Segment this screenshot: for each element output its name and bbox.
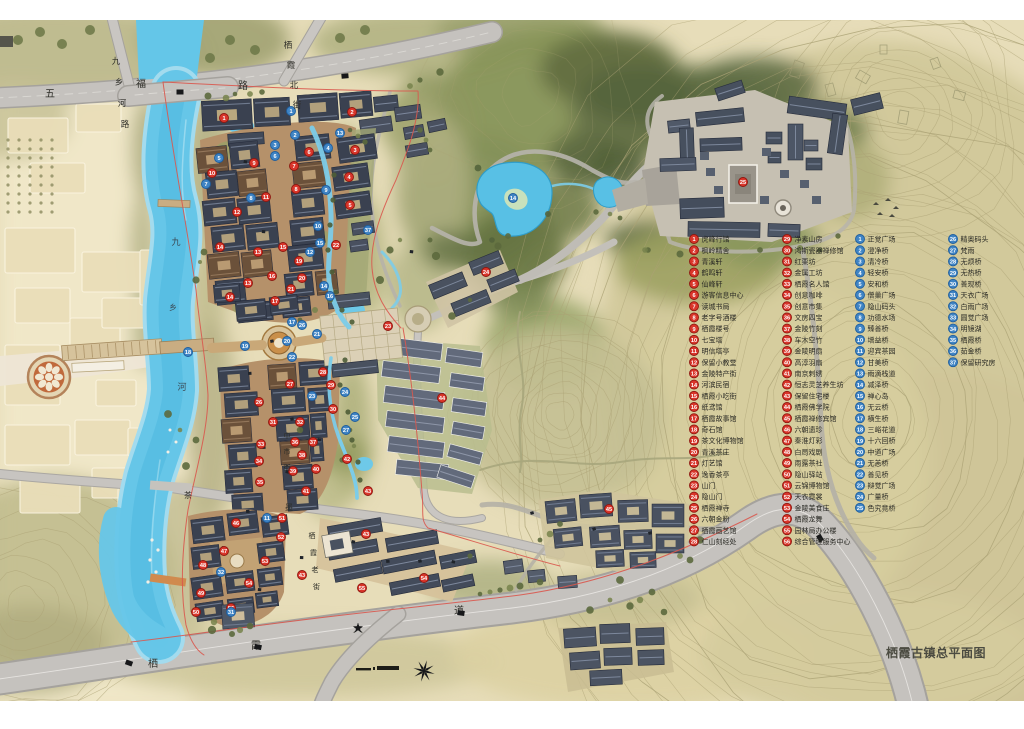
svg-text:8: 8 [249,196,252,202]
svg-text:27: 27 [287,382,293,388]
svg-text:河: 河 [118,98,127,108]
svg-text:读城书局: 读城书局 [702,302,730,311]
svg-text:29: 29 [784,237,790,243]
svg-text:43: 43 [365,489,371,495]
svg-text:隐山门: 隐山门 [702,492,723,501]
svg-text:栖霞故事馆: 栖霞故事馆 [702,414,737,423]
svg-text:18: 18 [857,428,863,434]
svg-text:老: 老 [312,565,319,574]
svg-text:街: 街 [293,100,302,110]
svg-text:2: 2 [293,133,296,139]
svg-text:栖: 栖 [148,657,158,670]
svg-text:24: 24 [857,495,864,501]
svg-text:26: 26 [691,517,697,523]
svg-text:安和桥: 安和桥 [868,279,889,288]
svg-text:16: 16 [327,294,333,300]
svg-text:21: 21 [288,287,294,293]
svg-text:28: 28 [320,370,326,376]
svg-text:秦淮灯彩: 秦淮灯彩 [795,436,823,445]
svg-text:6: 6 [692,293,695,299]
svg-text:21: 21 [857,461,863,467]
svg-text:50: 50 [193,610,199,616]
svg-text:甘美桥: 甘美桥 [868,358,889,367]
svg-text:创意咖啡: 创意咖啡 [795,291,823,300]
svg-text:8: 8 [858,316,861,322]
svg-text:精奥码头: 精奥码头 [961,235,989,244]
svg-text:金属工坊: 金属工坊 [795,268,823,277]
svg-text:霞: 霞 [310,549,317,557]
svg-text:1: 1 [289,109,292,115]
svg-text:中: 中 [284,431,291,440]
svg-text:7: 7 [292,164,295,170]
svg-text:文房四宝: 文房四宝 [795,313,823,322]
svg-text:隐山驿站: 隐山驿站 [795,470,823,479]
svg-text:19: 19 [857,439,863,445]
svg-text:鸿斯瓷器禅修馆: 鸿斯瓷器禅修馆 [795,246,844,255]
svg-text:色究竟桥: 色究竟桥 [868,503,896,512]
svg-text:55: 55 [359,586,365,592]
svg-text:仙峰轩: 仙峰轩 [702,279,723,288]
svg-text:27: 27 [343,428,349,434]
svg-text:栖霞古镇总平面图: 栖霞古镇总平面图 [886,645,986,660]
svg-text:栖霞佛学院: 栖霞佛学院 [795,403,830,412]
svg-text:7: 7 [692,304,695,310]
svg-text:九: 九 [171,237,180,247]
svg-text:22: 22 [857,472,863,478]
svg-text:9: 9 [324,188,327,194]
svg-text:15: 15 [317,241,323,247]
svg-text:恒志灵芝养生坊: 恒志灵芝养生坊 [795,380,844,389]
svg-text:31: 31 [950,293,956,299]
svg-text:3: 3 [858,260,861,266]
svg-text:6: 6 [273,154,276,160]
svg-text:7: 7 [204,182,207,188]
svg-text:5: 5 [348,203,351,209]
svg-text:46: 46 [233,521,239,527]
svg-text:乡: 乡 [169,303,177,312]
svg-text:37: 37 [950,360,956,366]
svg-text:茶文化博物馆: 茶文化博物馆 [702,436,744,445]
svg-text:32: 32 [297,420,303,426]
svg-text:31: 31 [228,610,234,616]
svg-text:灯艺馆: 灯艺馆 [702,459,723,468]
svg-text:30: 30 [330,407,336,413]
svg-text:仁山刻经处: 仁山刻经处 [702,537,737,546]
svg-text:8: 8 [692,316,695,322]
svg-text:36: 36 [784,316,790,322]
svg-text:34: 34 [256,459,263,465]
svg-text:创意市集: 创意市集 [795,302,823,311]
svg-text:5: 5 [217,156,220,162]
svg-text:10: 10 [315,224,321,230]
svg-text:46: 46 [784,428,790,434]
svg-text:河滨民宿: 河滨民宿 [702,380,730,389]
svg-text:14: 14 [321,284,328,290]
svg-text:栖霞龙舞: 栖霞龙舞 [795,515,823,524]
svg-text:老字号酒楼: 老字号酒楼 [702,313,737,322]
svg-text:30: 30 [950,282,956,288]
svg-text:53: 53 [784,506,790,512]
svg-text:14: 14 [227,295,234,301]
svg-text:11: 11 [691,349,697,355]
svg-text:11: 11 [857,349,863,355]
svg-text:18: 18 [691,428,697,434]
svg-text:20: 20 [284,339,290,345]
svg-text:16: 16 [269,274,275,280]
svg-text:车木空竹: 车木空竹 [795,335,823,344]
svg-text:32: 32 [950,304,956,310]
svg-text:墨: 墨 [285,503,293,512]
svg-text:北: 北 [290,80,299,90]
svg-text:3: 3 [273,143,276,149]
svg-text:13: 13 [245,281,251,287]
svg-text:七宝塔: 七宝塔 [702,335,723,344]
svg-text:26: 26 [256,400,262,406]
svg-text:20: 20 [857,450,863,456]
svg-text:44: 44 [439,396,446,402]
svg-text:无云桥: 无云桥 [868,403,889,412]
svg-text:16: 16 [857,405,863,411]
svg-text:金陵特产街: 金陵特产街 [702,369,737,378]
svg-text:明信塔亭: 明信塔亭 [702,347,730,356]
svg-text:栖霞禅修宾馆: 栖霞禅修宾馆 [795,414,837,423]
svg-text:栖霞楼号: 栖霞楼号 [702,324,730,333]
svg-text:白局戏剧: 白局戏剧 [795,447,823,456]
svg-text:河: 河 [177,381,186,392]
svg-text:3: 3 [353,148,356,154]
svg-text:2: 2 [858,248,861,254]
svg-text:增益桥: 增益桥 [868,335,889,344]
svg-text:栖: 栖 [309,531,316,540]
svg-text:55: 55 [784,528,790,534]
svg-text:22: 22 [333,243,339,249]
svg-text:园林局办公楼: 园林局办公楼 [795,526,837,535]
svg-text:无烦桥: 无烦桥 [961,257,982,266]
svg-text:40: 40 [784,360,790,366]
svg-text:47: 47 [221,549,227,555]
svg-text:11: 11 [264,516,270,522]
svg-text:栖霞小吃街: 栖霞小吃街 [702,391,737,400]
svg-text:47: 47 [784,439,790,445]
svg-text:游客信息中心: 游客信息中心 [702,291,744,300]
svg-text:38: 38 [784,338,790,344]
svg-text:6: 6 [307,150,310,156]
svg-text:三峪花道: 三峪花道 [868,425,896,434]
svg-text:31: 31 [270,420,276,426]
svg-text:37: 37 [784,327,790,333]
svg-text:13: 13 [255,250,261,256]
svg-text:19: 19 [296,259,302,265]
svg-text:广量桥: 广量桥 [868,492,889,501]
svg-text:金陵竹刻: 金陵竹刻 [795,324,823,333]
svg-text:1: 1 [858,237,861,243]
svg-text:36: 36 [292,440,298,446]
svg-text:9: 9 [252,161,255,167]
svg-text:23: 23 [385,324,391,330]
svg-text:35: 35 [257,480,263,486]
svg-text:29: 29 [328,383,334,389]
svg-text:17: 17 [857,416,863,422]
svg-text:56: 56 [784,540,790,546]
svg-text:14: 14 [691,383,698,389]
svg-text:禅心岛: 禅心岛 [868,391,889,400]
svg-text:53: 53 [262,559,268,565]
svg-text:10: 10 [691,338,697,344]
svg-text:综合管理服务中心: 综合管理服务中心 [795,537,851,546]
svg-text:栖: 栖 [284,40,293,50]
svg-text:31: 31 [784,260,790,266]
svg-text:21: 21 [691,461,697,467]
svg-text:10: 10 [209,171,215,177]
svg-text:路: 路 [238,79,248,92]
svg-text:24: 24 [691,495,698,501]
svg-text:51: 51 [784,484,790,490]
svg-text:17: 17 [691,416,697,422]
svg-text:奇石馆: 奇石馆 [702,425,723,434]
svg-text:街: 街 [284,463,291,472]
svg-text:25: 25 [352,415,358,421]
svg-text:金陵明扇: 金陵明扇 [795,347,823,356]
svg-text:23: 23 [691,484,697,490]
svg-text:49: 49 [198,591,204,597]
svg-text:无热桥: 无热桥 [961,268,982,277]
svg-text:福: 福 [136,77,146,90]
svg-text:13: 13 [691,372,697,378]
svg-text:路: 路 [121,119,130,129]
svg-text:六朝遗珍: 六朝遗珍 [795,425,823,434]
svg-text:轻安桥: 轻安桥 [868,268,889,277]
svg-text:25: 25 [857,506,863,512]
svg-text:48: 48 [784,450,790,456]
svg-text:1: 1 [222,116,225,122]
svg-text:12: 12 [234,210,240,216]
svg-text:保留小教堂: 保留小教堂 [702,358,737,367]
svg-text:26: 26 [950,237,956,243]
svg-text:善见桥: 善见桥 [868,470,889,479]
svg-text:52: 52 [278,535,284,541]
svg-text:28: 28 [950,260,956,266]
svg-text:48: 48 [200,563,206,569]
svg-text:43: 43 [784,394,790,400]
svg-text:39: 39 [290,469,296,475]
svg-text:栖霞桥: 栖霞桥 [961,335,982,344]
svg-text:24: 24 [483,270,490,276]
svg-text:38: 38 [299,453,305,459]
svg-text:37: 37 [365,228,371,234]
svg-text:7: 7 [858,304,861,310]
svg-text:50: 50 [784,472,790,478]
svg-text:44: 44 [784,405,791,411]
svg-text:栖霞名人馆: 栖霞名人馆 [795,279,830,288]
svg-text:33: 33 [784,282,790,288]
svg-text:中道广场: 中道广场 [868,447,896,456]
svg-text:25: 25 [691,506,697,512]
svg-text:清冷桥: 清冷桥 [868,257,889,266]
svg-text:横生桥: 横生桥 [868,414,889,423]
svg-text:山门: 山门 [702,481,716,490]
svg-text:49: 49 [784,461,790,467]
svg-text:35: 35 [784,304,790,310]
svg-text:红栗坊: 红栗坊 [795,257,816,266]
svg-text:九: 九 [112,56,121,66]
svg-text:臻善桥: 臻善桥 [868,324,889,333]
svg-text:保留住宅楼: 保留住宅楼 [795,391,830,400]
svg-text:41: 41 [303,489,309,495]
svg-text:霞: 霞 [287,60,296,70]
svg-text:13: 13 [857,372,863,378]
svg-text:27: 27 [691,528,697,534]
svg-text:雨滴栈道: 雨滴栈道 [868,369,896,378]
svg-text:9: 9 [692,327,695,333]
svg-text:27: 27 [950,248,956,254]
svg-text:12: 12 [307,250,313,256]
svg-text:功德水场: 功德水场 [868,313,896,322]
svg-text:19: 19 [242,344,248,350]
svg-text:净素山房: 净素山房 [795,235,823,244]
svg-text:2: 2 [350,110,353,116]
svg-text:30: 30 [784,248,790,254]
svg-text:天衣霓裳: 天衣霓裳 [795,492,823,501]
svg-text:正觉广场: 正觉广场 [868,235,896,244]
svg-text:雨露茶社: 雨露茶社 [795,459,823,468]
svg-text:白雨广场: 白雨广场 [961,302,989,311]
svg-text:乡: 乡 [115,77,124,87]
svg-text:茹金桥: 茹金桥 [961,347,982,356]
svg-text:纸鸢馆: 纸鸢馆 [702,403,723,412]
svg-text:23: 23 [857,484,863,490]
svg-text:1: 1 [692,237,695,243]
svg-text:减泽桥: 减泽桥 [868,380,889,389]
svg-text:33: 33 [950,316,956,322]
svg-text:54: 54 [246,581,253,587]
svg-text:14: 14 [510,196,517,202]
svg-text:41: 41 [784,372,790,378]
svg-text:明镜湖: 明镜湖 [961,324,982,333]
svg-text:54: 54 [784,517,791,523]
svg-text:栖霞禅寺: 栖霞禅寺 [702,503,730,512]
svg-text:3: 3 [692,260,695,266]
svg-text:保留研究房: 保留研究房 [961,358,996,367]
svg-text:青溪茶庄: 青溪茶庄 [702,447,730,456]
svg-text:40: 40 [313,467,319,473]
svg-text:迎宾茶园: 迎宾茶园 [868,347,896,356]
svg-text:17: 17 [272,299,278,305]
svg-text:32: 32 [784,271,790,277]
svg-text:2: 2 [692,248,695,254]
svg-text:十六回桥: 十六回桥 [868,436,896,445]
svg-text:21: 21 [314,332,320,338]
svg-text:圆觉广场: 圆觉广场 [961,313,989,322]
svg-text:51: 51 [279,516,285,522]
svg-text:11: 11 [263,195,269,201]
svg-text:20: 20 [691,450,697,456]
svg-text:隐山码头: 隐山码头 [868,302,896,311]
svg-text:梵雨: 梵雨 [961,247,975,255]
svg-text:8: 8 [294,187,297,193]
svg-text:栖霞画艺馆: 栖霞画艺馆 [702,526,737,535]
svg-text:42: 42 [784,383,790,389]
svg-text:鹤鸣轩: 鹤鸣轩 [702,268,723,277]
svg-text:19: 19 [691,439,697,445]
svg-text:34: 34 [784,293,791,299]
svg-text:15: 15 [857,394,863,400]
svg-text:善现桥: 善现桥 [961,279,982,288]
svg-text:云锦博物馆: 云锦博物馆 [795,481,830,490]
svg-text:14: 14 [857,383,864,389]
svg-text:16: 16 [691,405,697,411]
svg-text:34: 34 [950,327,957,333]
svg-text:12: 12 [857,360,863,366]
svg-text:5: 5 [858,282,861,288]
svg-text:29: 29 [950,271,956,277]
svg-text:13: 13 [337,131,343,137]
svg-text:街: 街 [313,582,320,591]
svg-text:辩觉广场: 辩觉广场 [868,481,896,490]
svg-text:僧巢广场: 僧巢广场 [868,291,896,300]
svg-text:26: 26 [299,323,305,329]
svg-text:35: 35 [950,338,956,344]
svg-text:六朝金粉: 六朝金粉 [702,515,730,524]
svg-text:33: 33 [258,442,264,448]
svg-text:14: 14 [217,245,224,251]
svg-text:金陵美食庄: 金陵美食庄 [795,503,830,512]
svg-text:12: 12 [691,360,697,366]
svg-text:青溪轩: 青溪轩 [702,257,723,266]
svg-text:17: 17 [289,320,295,326]
svg-text:市: 市 [284,447,291,456]
svg-text:15: 15 [280,245,286,251]
svg-text:42: 42 [344,457,350,463]
svg-text:54: 54 [421,576,428,582]
svg-text:无恙桥: 无恙桥 [868,459,889,468]
svg-text:52: 52 [784,495,790,501]
svg-text:逸香茶亭: 逸香茶亭 [702,470,730,479]
svg-text:高淳羽扇: 高淳羽扇 [795,358,823,367]
svg-text:25: 25 [740,180,746,186]
svg-text:39: 39 [784,349,790,355]
svg-text:28: 28 [691,540,697,546]
svg-text:南京刺绣: 南京刺绣 [795,369,823,378]
svg-text:10: 10 [857,338,863,344]
svg-text:22: 22 [691,472,697,478]
svg-text:36: 36 [950,349,956,355]
svg-text:23: 23 [309,394,315,400]
svg-text:45: 45 [606,507,612,513]
svg-text:枫岭精舍: 枫岭精舍 [702,246,730,255]
svg-text:6: 6 [858,293,861,299]
svg-text:37: 37 [310,440,316,446]
svg-text:9: 9 [858,327,861,333]
svg-text:茶: 茶 [184,490,192,500]
svg-text:虎峰行馆: 虎峰行馆 [702,235,730,244]
svg-text:5: 5 [692,282,695,288]
svg-text:43: 43 [363,532,369,538]
svg-text:天衣广场: 天衣广场 [961,291,989,300]
svg-text:五: 五 [45,89,55,100]
svg-text:澄净桥: 澄净桥 [868,246,889,255]
svg-text:22: 22 [289,355,295,361]
svg-text:18: 18 [185,350,191,356]
svg-text:32: 32 [218,570,224,576]
svg-text:15: 15 [691,394,697,400]
svg-text:24: 24 [342,390,349,396]
svg-text:20: 20 [299,276,305,282]
svg-text:45: 45 [784,416,790,422]
svg-text:43: 43 [299,573,305,579]
